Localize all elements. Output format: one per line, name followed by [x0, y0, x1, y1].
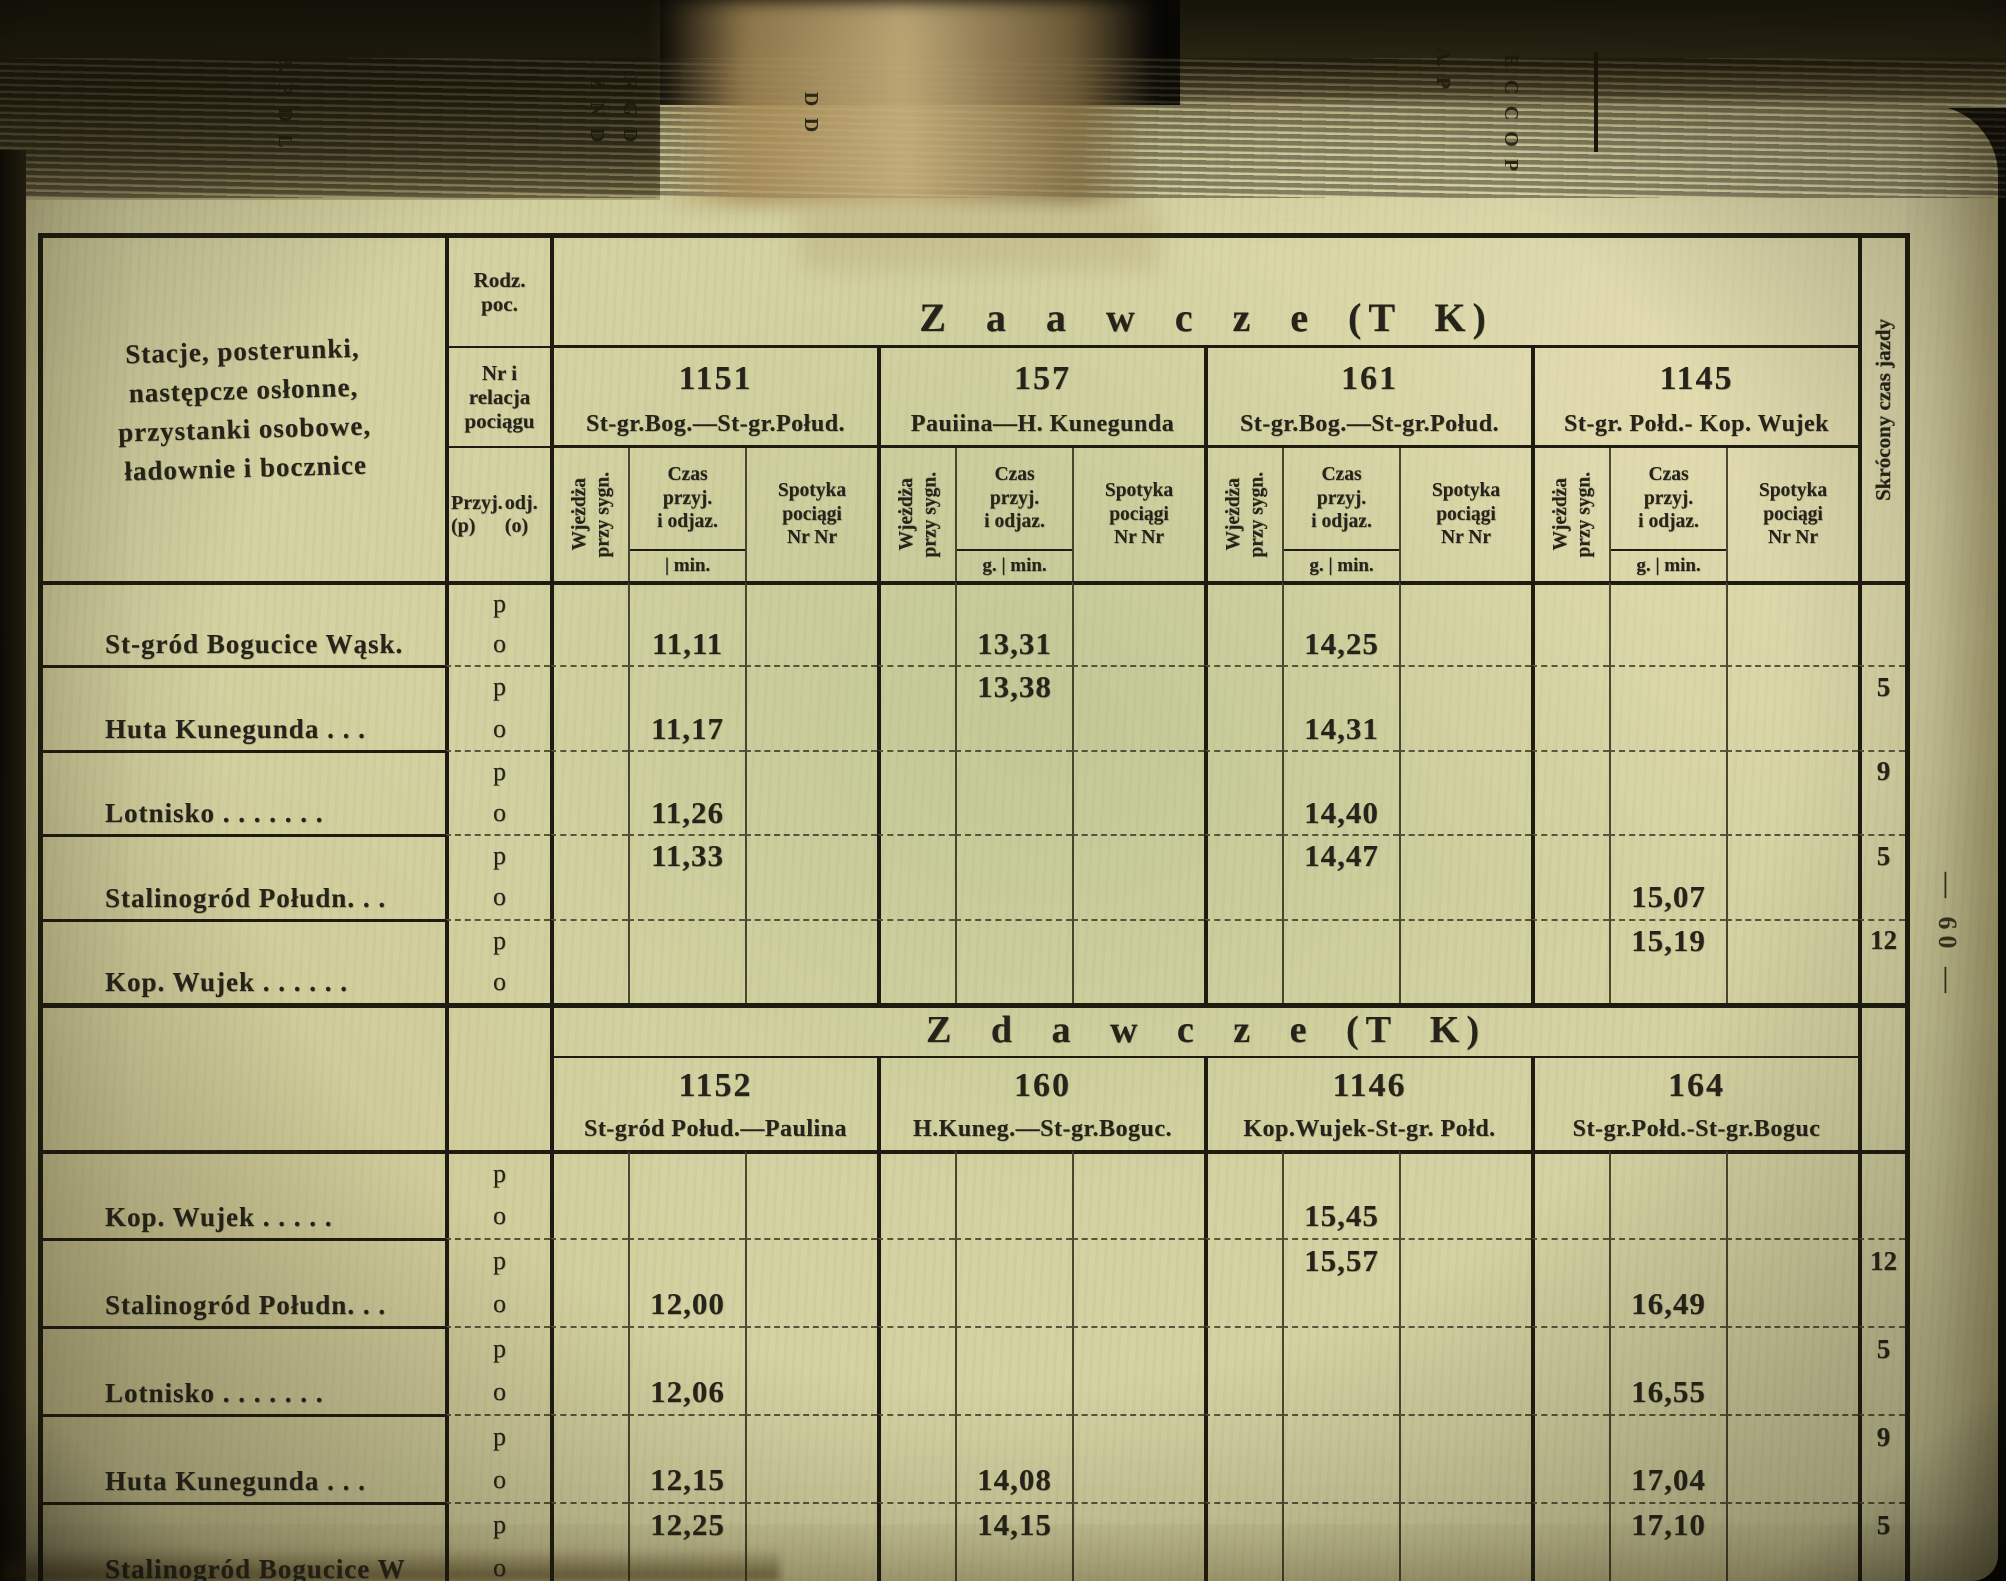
time-cell	[955, 792, 1072, 834]
time-cell	[955, 1238, 1072, 1282]
time-cell: 12,25	[628, 1502, 745, 1546]
spine-letter: P	[1500, 152, 1522, 178]
meets-trains-cell	[1399, 1150, 1531, 1238]
meets-trains-cell	[1399, 1414, 1531, 1502]
station-header-line: ładownie i bocznice	[124, 449, 367, 487]
margin-time-cell: 5	[1858, 834, 1905, 876]
spine-letter: C	[1500, 74, 1522, 100]
spine-fragment: A.P	[1430, 46, 1456, 94]
time-cell	[955, 834, 1072, 876]
entry-signal-cell	[1204, 1238, 1282, 1326]
time-cell	[1282, 1282, 1399, 1326]
station-row-label: Lotnisko . . . . . . .	[43, 1326, 445, 1414]
row-type-letter: p	[445, 1150, 550, 1194]
spine-letter: N	[586, 96, 608, 122]
train-relation: St-gród Połud.—Paulina	[550, 1108, 877, 1150]
spine-letter: D	[800, 86, 822, 112]
time-cell: 15,45	[1282, 1194, 1399, 1238]
meets-trains-cell	[745, 581, 877, 665]
time-cell	[955, 750, 1072, 792]
meets-trains-cell	[745, 834, 877, 918]
station-row-label: Stalinogród Bogucice W	[43, 1502, 445, 1581]
meets-trains-cell	[1072, 581, 1204, 665]
shortened-travel-time-label: Skrócony czas jazdy	[1871, 319, 1896, 501]
time-cell	[1282, 876, 1399, 918]
meets-trains-cell	[1072, 1238, 1204, 1326]
entry-signal-cell	[1204, 581, 1282, 665]
time-cell	[1282, 1414, 1399, 1458]
entry-signal-cell	[1531, 1150, 1609, 1238]
meets-trains-cell	[745, 750, 877, 834]
meets-trains-cell	[1072, 750, 1204, 834]
train-relation: St-gr.Bog.—St-gr.Połud.	[1204, 403, 1531, 448]
meets-trains-cell	[1726, 581, 1858, 665]
time-cell	[1282, 750, 1399, 792]
hour-minute-label: g. | min.	[1284, 549, 1399, 581]
entry-signal-cell	[1531, 750, 1609, 834]
time-cell: 14,47	[1282, 834, 1399, 876]
time-cell	[955, 1150, 1072, 1194]
meets-trains-cell	[745, 1326, 877, 1414]
time-cell	[1609, 665, 1726, 707]
time-cell	[1282, 919, 1399, 961]
meets-trains-cell	[745, 1238, 877, 1326]
entry-signal-cell	[877, 1326, 955, 1414]
station-column-header: Stacje, posterunki, następcze osłonne, p…	[38, 232, 449, 586]
entry-signal-cell	[1204, 834, 1282, 918]
margin-time-cell: 5	[1858, 1502, 1905, 1546]
row-type-letter: p	[445, 834, 550, 876]
entry-signal-cell	[877, 1238, 955, 1326]
entry-signal-header: Wjeżdża przy sygn.	[1531, 448, 1609, 581]
time-cell	[1609, 961, 1726, 1003]
time-cell: 17,10	[1609, 1502, 1726, 1546]
station-row-label: Stalinogród Połudn. . .	[43, 1238, 445, 1326]
spine-letter: D	[586, 122, 608, 148]
entry-signal-cell	[877, 1502, 955, 1581]
meets-trains-cell	[1726, 1150, 1858, 1238]
train-kind-header: Rodz. poc.	[445, 238, 550, 348]
time-cell	[955, 1546, 1072, 1581]
train-relation: St-gr.Połd.-St-gr.Boguc	[1531, 1108, 1858, 1150]
entry-signal-cell	[1204, 1150, 1282, 1238]
station-row-label: Huta Kunegunda . . .	[43, 1414, 445, 1502]
row-type-letter: o	[445, 876, 550, 918]
entry-signal-cell	[550, 1150, 628, 1238]
entry-signal-cell	[550, 919, 628, 1003]
adjacent-page-edge	[1594, 52, 1598, 152]
entry-signal-cell	[1531, 834, 1609, 918]
entry-signal-cell	[550, 1238, 628, 1326]
time-cell	[628, 665, 745, 707]
time-header: Czas przyj. i odjaz. | min.	[628, 448, 745, 581]
time-cell	[1609, 623, 1726, 665]
time-cell	[955, 708, 1072, 750]
time-cell	[1282, 1326, 1399, 1370]
station-header-line: Stacje, posterunki,	[125, 332, 360, 370]
time-cell	[1282, 1458, 1399, 1502]
meets-trains-cell	[1726, 665, 1858, 749]
station-header-line: następcze osłonne,	[128, 371, 358, 408]
time-cell	[1609, 750, 1726, 792]
margin-time-cell	[1858, 1194, 1905, 1238]
entry-signal-cell	[1531, 1326, 1609, 1414]
row-type-letter: p	[445, 1238, 550, 1282]
spine-letter: A.	[1432, 44, 1454, 70]
meets-trains-cell	[1726, 1414, 1858, 1502]
time-cell	[1609, 1414, 1726, 1458]
meets-trains-label: Spotyka pociągi Nr Nr	[778, 479, 846, 549]
entry-signal-cell	[1204, 750, 1282, 834]
time-cell	[955, 1370, 1072, 1414]
entry-signal-cell	[1531, 919, 1609, 1003]
time-cell	[1282, 1546, 1399, 1581]
train-number-header: 164	[1531, 1058, 1858, 1108]
time-cell	[628, 1326, 745, 1370]
time-cell	[628, 1238, 745, 1282]
row-type-letter: p	[445, 1414, 550, 1458]
grid-cell	[1858, 1003, 1905, 1150]
meets-trains-cell	[1726, 1326, 1858, 1414]
spine-letter: D	[619, 122, 641, 148]
arrival-label: Przyj.(p)	[451, 492, 505, 538]
time-cell	[1609, 1238, 1726, 1282]
entry-signal-cell	[1531, 1414, 1609, 1502]
time-cell	[1609, 1546, 1726, 1581]
time-cell: 12,06	[628, 1370, 745, 1414]
spine-fragment: DD	[798, 88, 824, 136]
train-number-relation-header: Nr i relacja pociągu	[445, 348, 550, 448]
margin-time-cell	[1858, 708, 1905, 750]
timetable-section-arrivals: Stacje, posterunki, następcze osłonne, p…	[38, 233, 1910, 1008]
train-number-header: 161	[1204, 348, 1531, 403]
train-relation: Pauiina—H. Kunegunda	[877, 403, 1204, 448]
time-cell: 12,00	[628, 1282, 745, 1326]
margin-time-cell	[1858, 792, 1905, 834]
departure-label: odj. (o)	[505, 492, 548, 538]
time-cell	[1609, 708, 1726, 750]
meets-trains-cell	[1726, 1502, 1858, 1581]
arrival-departure-header: Przyj.(p) odj. (o)	[445, 448, 550, 581]
row-type-letter: o	[445, 1458, 550, 1502]
hour-minute-label: g. | min.	[1611, 549, 1726, 581]
meets-trains-cell	[1072, 1414, 1204, 1502]
spine-letter: B.	[274, 50, 296, 76]
station-row-label: Kop. Wujek . . . . .	[43, 1150, 445, 1238]
margin-time-cell: 9	[1858, 750, 1905, 792]
train-relation: H.Kuneg.—St-gr.Boguc.	[877, 1108, 1204, 1150]
margin-time-cell: 5	[1858, 1326, 1905, 1370]
spine-letter: G	[619, 96, 641, 122]
time-cell: 14,25	[1282, 623, 1399, 665]
entry-signal-cell	[1204, 1414, 1282, 1502]
spine-fragment: PRGD	[617, 46, 643, 146]
time-cell	[955, 1194, 1072, 1238]
time-cell	[1282, 1150, 1399, 1194]
entry-signal-cell	[1531, 1502, 1609, 1581]
time-cell: 11,17	[628, 708, 745, 750]
section-title: Z d a w c z e (T K)	[550, 1003, 1858, 1058]
time-cell	[628, 1414, 745, 1458]
time-header: Czas przyj. i odjaz. g. | min.	[955, 448, 1072, 581]
time-cell	[1282, 961, 1399, 1003]
hour-minute-label: g. | min.	[957, 549, 1072, 581]
margin-time-cell	[1858, 1458, 1905, 1502]
meets-trains-label: Spotyka pociągi Nr Nr	[1105, 479, 1173, 549]
spine-letter: D	[800, 112, 822, 138]
time-cell: 13,31	[955, 623, 1072, 665]
time-cell	[628, 1546, 745, 1581]
time-cell	[628, 876, 745, 918]
time-cell: 16,55	[1609, 1370, 1726, 1414]
time-cell	[628, 1150, 745, 1194]
spine-letter: E	[1500, 48, 1522, 74]
timetable-section-departures: Z d a w c z e (T K) 1152 160 1146 164 St…	[38, 1003, 1910, 1581]
entry-signal-cell	[877, 1150, 955, 1238]
time-cell	[1609, 1326, 1726, 1370]
time-label: Czas przyj. i odjaz.	[1284, 448, 1399, 549]
meets-trains-cell	[1399, 1326, 1531, 1414]
row-type-letter: p	[445, 750, 550, 792]
meets-trains-label: Spotyka pociągi Nr Nr	[1432, 479, 1500, 549]
spine-letter: P	[619, 44, 641, 70]
entry-signal-cell	[550, 1502, 628, 1581]
spine-letter: R	[619, 70, 641, 96]
grid-cell	[445, 1003, 550, 1150]
time-cell: 17,04	[1609, 1458, 1726, 1502]
spine-letter: P	[274, 76, 296, 102]
entry-signal-cell	[1204, 1326, 1282, 1414]
margin-time-cell	[1858, 1546, 1905, 1581]
time-cell	[628, 961, 745, 1003]
row-type-letter: o	[445, 1194, 550, 1238]
meets-trains-cell	[1726, 1238, 1858, 1326]
section-title: Z a a w c z e (T K)	[550, 238, 1858, 348]
meets-trains-cell	[1399, 834, 1531, 918]
time-cell	[628, 1194, 745, 1238]
row-type-letter: o	[445, 623, 550, 665]
margin-time-cell	[1858, 623, 1905, 665]
train-number-header: 1152	[550, 1058, 877, 1108]
train-number-header: 1145	[1531, 348, 1858, 403]
time-cell	[1282, 665, 1399, 707]
meets-trains-header: Spotyka pociągi Nr Nr	[1072, 448, 1204, 581]
time-cell	[955, 1414, 1072, 1458]
meets-trains-cell	[1072, 834, 1204, 918]
station-row-label: St-gród Bogucice Wąsk.	[43, 581, 445, 665]
spine-letter: P	[1432, 70, 1454, 96]
time-label: Czas przyj. i odjaz.	[630, 448, 745, 549]
time-cell: 13,38	[955, 665, 1072, 707]
margin-time-cell: 5	[1858, 665, 1905, 707]
spine-letter: O	[1500, 126, 1522, 152]
time-cell	[1609, 1150, 1726, 1194]
spine-fragment: ECCOP	[1498, 50, 1524, 176]
time-cell	[955, 876, 1072, 918]
meets-trains-cell	[745, 1502, 877, 1581]
entry-signal-header: Wjeżdża przy sygn.	[877, 448, 955, 581]
entry-signal-cell	[877, 581, 955, 665]
station-header-line: przystanki osobowe,	[118, 410, 372, 448]
time-cell	[628, 581, 745, 623]
meets-trains-cell	[1072, 1150, 1204, 1238]
meets-trains-cell	[745, 919, 877, 1003]
time-cell	[1609, 834, 1726, 876]
entry-signal-cell	[1531, 665, 1609, 749]
book-edge-right	[1180, 0, 2006, 108]
time-cell	[955, 581, 1072, 623]
meets-trains-cell	[1399, 750, 1531, 834]
meets-trains-cell	[745, 1150, 877, 1238]
time-cell: 16,49	[1609, 1282, 1726, 1326]
scan-blur-smear	[655, 0, 1155, 205]
train-relation: St-gr.Bog.—St-gr.Połud.	[550, 403, 877, 448]
entry-signal-label: Wjeżdża przy sygn.	[1549, 472, 1596, 558]
train-number-header: 160	[877, 1058, 1204, 1108]
row-type-letter: o	[445, 1370, 550, 1414]
spine-letter: C	[1500, 100, 1522, 126]
meets-trains-header: Spotyka pociągi Nr Nr	[745, 448, 877, 581]
row-type-letter: o	[445, 708, 550, 750]
train-number-header: 1146	[1204, 1058, 1531, 1108]
spine-fragment: B.PDL	[272, 52, 298, 152]
row-type-letter: o	[445, 961, 550, 1003]
margin-time-cell	[1858, 876, 1905, 918]
station-row-label: Huta Kunegunda . . .	[43, 665, 445, 749]
spine-fragment: D.ZND	[584, 46, 610, 146]
entry-signal-label: Wjeżdża przy sygn.	[568, 472, 615, 558]
time-cell: 15,07	[1609, 876, 1726, 918]
row-type-letter: o	[445, 1282, 550, 1326]
time-cell	[1282, 1370, 1399, 1414]
meets-trains-cell	[1726, 834, 1858, 918]
page-number: — 60 —	[1932, 872, 1962, 999]
spine-letter: Z	[586, 70, 608, 96]
entry-signal-label: Wjeżdża przy sygn.	[1222, 472, 1269, 558]
row-type-letter: o	[445, 792, 550, 834]
entry-signal-cell	[550, 1414, 628, 1502]
spine-letter: D.	[586, 44, 608, 70]
time-cell: 14,31	[1282, 708, 1399, 750]
margin-time-cell: 9	[1858, 1414, 1905, 1458]
time-cell	[1282, 1502, 1399, 1546]
margin-time-cell	[1858, 961, 1905, 1003]
scanned-timetable-photo: B.PDLD.ZNDPRGDDDA.PECCOP — 60 — Stacje, …	[0, 0, 2006, 1581]
row-type-letter: p	[445, 581, 550, 623]
entry-signal-cell	[877, 750, 955, 834]
entry-signal-cell	[550, 1326, 628, 1414]
entry-signal-cell	[550, 834, 628, 918]
meets-trains-header: Spotyka pociągi Nr Nr	[1726, 448, 1858, 581]
train-relation: Kop.Wujek-St-gr. Połd.	[1204, 1108, 1531, 1150]
row-type-letter: p	[445, 1326, 550, 1370]
station-row-label: Kop. Wujek . . . . . .	[43, 919, 445, 1003]
train-relation: St-gr. Połd.- Kop. Wujek	[1531, 403, 1858, 448]
margin-time-cell	[1858, 1370, 1905, 1414]
entry-signal-cell	[1204, 1502, 1282, 1581]
row-type-letter: o	[445, 1546, 550, 1581]
entry-signal-cell	[1204, 919, 1282, 1003]
time-cell: 11,33	[628, 834, 745, 876]
margin-time-cell	[1858, 1282, 1905, 1326]
entry-signal-cell	[877, 1414, 955, 1502]
time-header: Czas przyj. i odjaz. g. | min.	[1609, 448, 1726, 581]
spine-letter: D	[274, 102, 296, 128]
meets-trains-cell	[745, 1414, 877, 1502]
meets-trains-cell	[745, 665, 877, 749]
time-cell: 11,26	[628, 792, 745, 834]
time-cell	[955, 919, 1072, 961]
time-cell	[1282, 581, 1399, 623]
entry-signal-cell	[550, 665, 628, 749]
time-cell	[628, 919, 745, 961]
meets-trains-cell	[1399, 919, 1531, 1003]
time-cell: 11,11	[628, 623, 745, 665]
time-cell	[955, 961, 1072, 1003]
time-cell	[1609, 1194, 1726, 1238]
time-cell	[1609, 581, 1726, 623]
time-label: Czas przyj. i odjaz.	[957, 448, 1072, 549]
train-number-header: 157	[877, 348, 1204, 403]
entry-signal-label: Wjeżdża przy sygn.	[895, 472, 942, 558]
row-type-letter: p	[445, 919, 550, 961]
entry-signal-cell	[1531, 1238, 1609, 1326]
entry-signal-cell	[877, 665, 955, 749]
train-number-header: 1151	[550, 348, 877, 403]
meets-trains-cell	[1072, 665, 1204, 749]
meets-trains-label: Spotyka pociągi Nr Nr	[1759, 479, 1827, 549]
photo-left-edge	[0, 150, 26, 1581]
time-cell: 14,15	[955, 1502, 1072, 1546]
time-cell: 12,15	[628, 1458, 745, 1502]
time-cell	[955, 1326, 1072, 1370]
time-cell: 15,57	[1282, 1238, 1399, 1282]
entry-signal-cell	[877, 919, 955, 1003]
meets-trains-cell	[1726, 750, 1858, 834]
grid-cell	[43, 1003, 445, 1150]
time-header: Czas przyj. i odjaz. g. | min.	[1282, 448, 1399, 581]
time-cell: 14,08	[955, 1458, 1072, 1502]
time-cell: 15,19	[1609, 919, 1726, 961]
shortened-travel-time-header: Skrócony czas jazdy	[1858, 238, 1905, 581]
station-row-label: Stalinogród Połudn. . .	[43, 834, 445, 918]
margin-time-cell: 12	[1858, 919, 1905, 961]
margin-time-cell: 12	[1858, 1238, 1905, 1282]
hour-minute-label: | min.	[630, 549, 745, 581]
time-label: Czas przyj. i odjaz.	[1611, 448, 1726, 549]
margin-time-cell	[1858, 1150, 1905, 1194]
meets-trains-cell	[1399, 1502, 1531, 1581]
station-row-label: Lotnisko . . . . . . .	[43, 750, 445, 834]
meets-trains-cell	[1072, 919, 1204, 1003]
entry-signal-cell	[877, 834, 955, 918]
entry-signal-header: Wjeżdża przy sygn.	[1204, 448, 1282, 581]
entry-signal-cell	[1204, 665, 1282, 749]
time-cell	[1609, 792, 1726, 834]
time-cell	[628, 750, 745, 792]
meets-trains-header: Spotyka pociągi Nr Nr	[1399, 448, 1531, 581]
meets-trains-cell	[1072, 1502, 1204, 1581]
entry-signal-header: Wjeżdża przy sygn.	[550, 448, 628, 581]
row-type-letter: p	[445, 1502, 550, 1546]
meets-trains-cell	[1726, 919, 1858, 1003]
entry-signal-cell	[550, 581, 628, 665]
meets-trains-cell	[1399, 1238, 1531, 1326]
book-edge-left	[0, 0, 660, 200]
time-cell: 14,40	[1282, 792, 1399, 834]
meets-trains-cell	[1072, 1326, 1204, 1414]
spine-letter: L	[274, 128, 296, 154]
